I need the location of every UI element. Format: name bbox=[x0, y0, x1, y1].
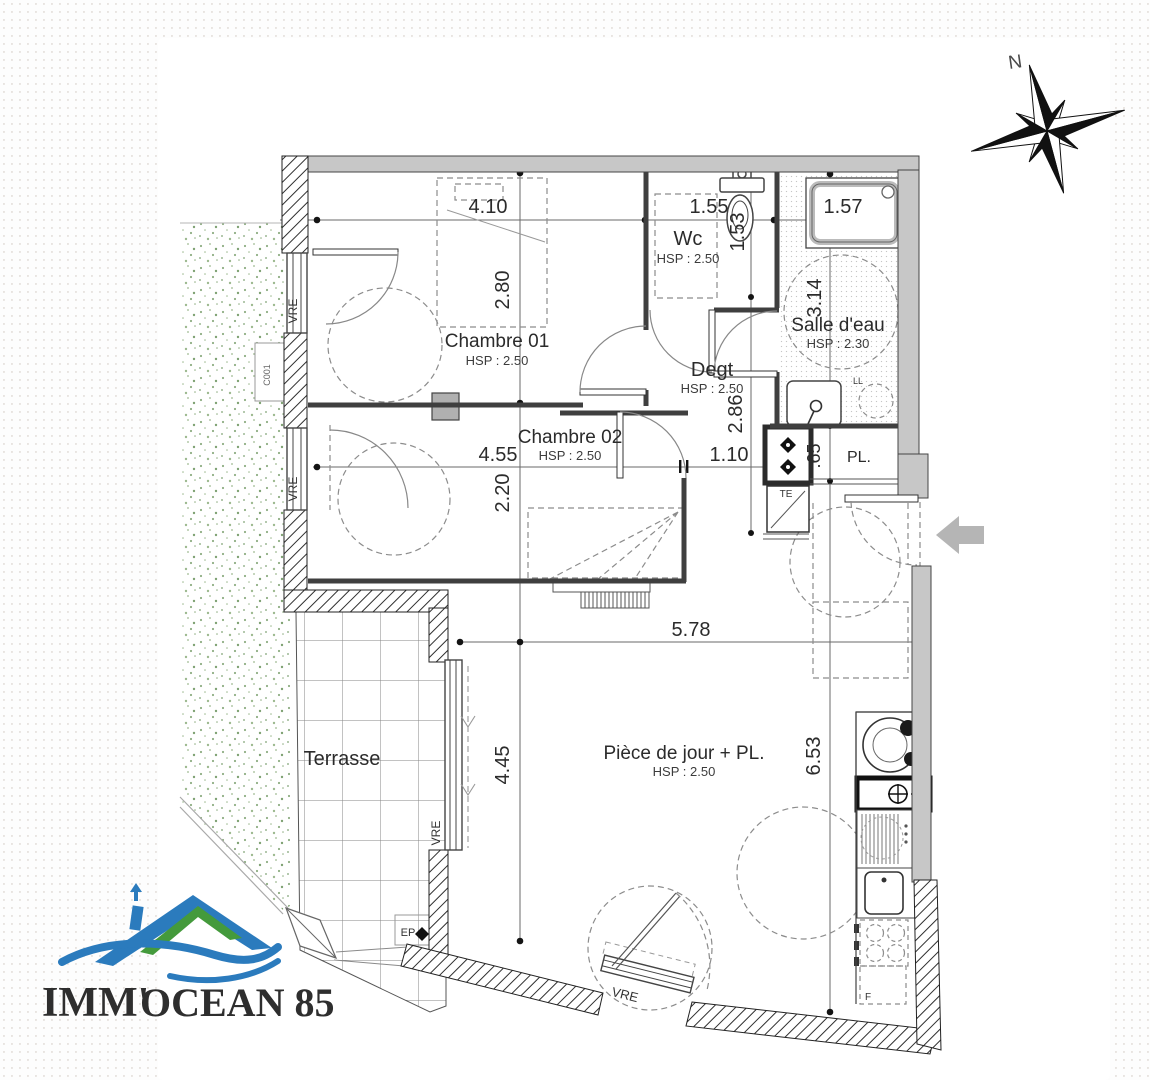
dim-pl-depth: .65 bbox=[804, 443, 824, 468]
room-label-salle-eau: Salle d'eau bbox=[791, 315, 884, 336]
garden-area bbox=[180, 223, 290, 914]
left-wall-pier-3 bbox=[284, 510, 307, 592]
dim-wc-depth: 1.53 bbox=[727, 213, 749, 252]
top-wall bbox=[285, 156, 919, 172]
hsp-salle-eau: HSP : 2.30 bbox=[807, 336, 870, 351]
dim-degt-depth: 2.86 bbox=[725, 395, 747, 434]
ref-tag: C001 bbox=[262, 364, 272, 386]
hsp-degt: HSP : 2.50 bbox=[681, 381, 744, 396]
dim-hall-width: 1.10 bbox=[710, 444, 749, 466]
dim-chambre01-width: 4.10 bbox=[469, 196, 508, 218]
fridge-tag: F bbox=[865, 992, 871, 1003]
dim-living-depth: 4.45 bbox=[492, 746, 514, 785]
left-wall-pier-1 bbox=[282, 156, 308, 253]
dim-chambre01-depth: 2.80 bbox=[492, 271, 514, 310]
hsp-chambre02: HSP : 2.50 bbox=[539, 448, 602, 463]
logo-text-green: IMM' bbox=[42, 980, 149, 1026]
right-wall-lower bbox=[912, 566, 931, 882]
bathroom-sink-icon bbox=[787, 381, 841, 426]
room-label-terrasse: Terrasse bbox=[304, 748, 381, 770]
room-label-chambre02: Chambre 02 bbox=[518, 427, 623, 448]
right-wall-hatched bbox=[914, 880, 941, 1050]
logo-text-blue: OCEAN 85 bbox=[140, 980, 334, 1025]
hsp-wc: HSP : 2.50 bbox=[657, 251, 720, 266]
room-label-living: Pièce de jour + PL. bbox=[603, 743, 764, 764]
left-wall-pier-2 bbox=[284, 333, 307, 428]
living-west-pier-2 bbox=[429, 850, 448, 954]
window-tag-2: VRE bbox=[286, 477, 300, 502]
room-label-wc: Wc bbox=[674, 228, 703, 250]
room-label-chambre01: Chambre 01 bbox=[445, 331, 550, 352]
rainwater-tag: EP bbox=[401, 927, 416, 939]
technical-tag: TE bbox=[780, 489, 793, 500]
room-label-degt: Degt bbox=[691, 359, 734, 381]
washer-tag: LL bbox=[853, 376, 863, 386]
window-tag-1: VRE bbox=[286, 299, 300, 324]
dim-chambre02-width: 4.55 bbox=[479, 444, 518, 466]
dim-chambre02-depth: 2.20 bbox=[492, 474, 514, 513]
window-tag-3: VRE bbox=[429, 821, 443, 846]
floorplan-drawing: N IMM' OCEAN 85 4.10 1.55 1.57 4.55 1.10… bbox=[0, 0, 1150, 1080]
dim-living-width: 5.78 bbox=[672, 619, 711, 641]
dim-shower-width: 1.57 bbox=[824, 196, 863, 218]
living-west-pier-1 bbox=[429, 608, 448, 662]
right-wall-step bbox=[898, 454, 928, 498]
right-wall-upper bbox=[898, 170, 919, 454]
dim-kitchen-wall: 6.53 bbox=[803, 737, 825, 776]
dim-wc-width: 1.55 bbox=[690, 196, 729, 218]
dim-salle-eau-depth: 3.14 bbox=[804, 279, 826, 318]
hsp-living: HSP : 2.50 bbox=[653, 764, 716, 779]
compass-north-label: N bbox=[1007, 51, 1024, 74]
floorplan-page: N IMM' OCEAN 85 4.10 1.55 1.57 4.55 1.10… bbox=[0, 0, 1150, 1080]
terrace-north-wall bbox=[284, 590, 448, 612]
room-label-pl: PL. bbox=[847, 449, 871, 466]
hsp-chambre01: HSP : 2.50 bbox=[466, 353, 529, 368]
